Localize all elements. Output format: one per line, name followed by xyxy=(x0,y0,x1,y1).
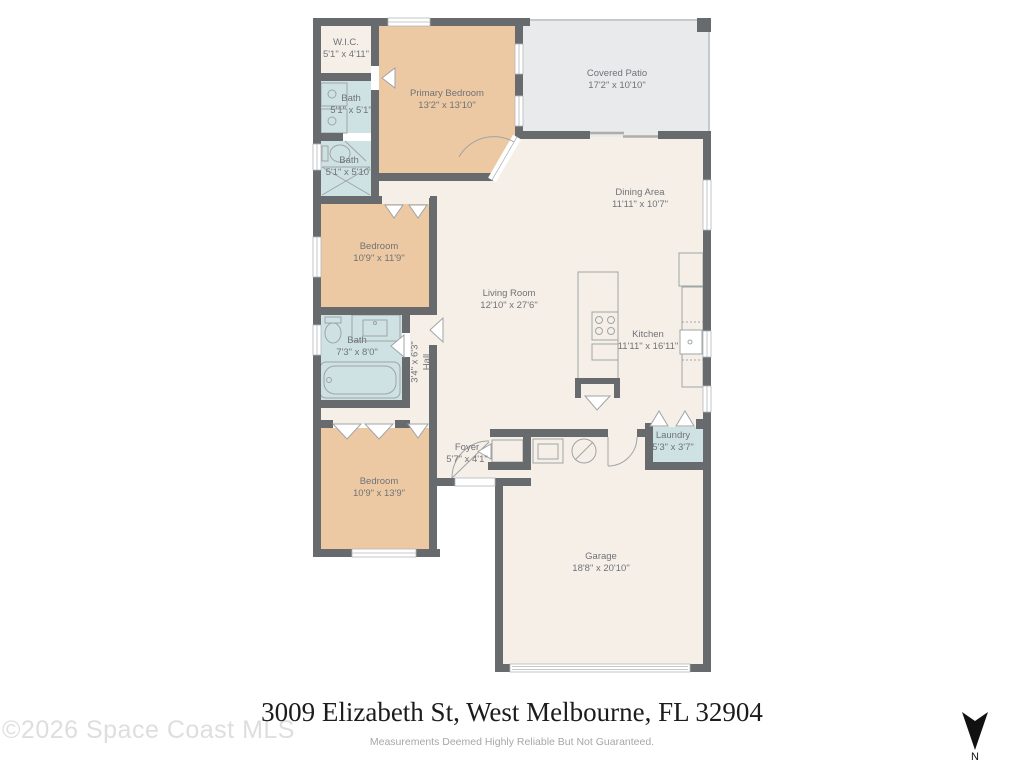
label-bedroom-2: Bedroom 10'9" x 11'9" xyxy=(353,241,404,264)
label-dining-area: Dining Area 11'11" x 10'7" xyxy=(612,187,668,210)
label-primary-bedroom: Primary Bedroom 13'2" x 13'10" xyxy=(410,88,484,111)
room-mini-hall xyxy=(379,177,437,204)
label-bath-3: Bath 7'3" x 8'0" xyxy=(336,335,378,358)
label-bath-1: Bath 5'1" x 5'1" xyxy=(330,93,372,116)
foyer-closet xyxy=(492,440,523,462)
floor-plan-page: W.I.C. 5'1" x 4'11" Bath 5'1" x 5'1" Bat… xyxy=(0,0,1024,768)
disclaimer-text: Measurements Deemed Highly Reliable But … xyxy=(0,736,1024,748)
label-bedroom-3: Bedroom 10'9" x 13'9" xyxy=(353,476,405,499)
label-laundry: Laundry 5'3" x 3'7" xyxy=(652,430,694,453)
floor-plan-drawing xyxy=(0,0,1024,768)
north-label: N xyxy=(971,751,979,763)
label-living-room: Living Room 12'10" x 27'6" xyxy=(480,288,537,311)
garage-door xyxy=(510,664,690,672)
address-title: 3009 Elizabeth St, West Melbourne, FL 32… xyxy=(0,697,1024,728)
front-door-opening xyxy=(455,478,495,486)
label-kitchen: Kitchen 11'11" x 16'11" xyxy=(618,329,679,352)
label-garage: Garage 18'8" x 20'10" xyxy=(572,551,629,574)
label-hall: 3'4" x 6'3" Hall xyxy=(410,341,433,383)
label-foyer: Foyer 5'7" x 4'1" xyxy=(446,442,488,465)
label-covered-patio: Covered Patio 17'2" x 10'10" xyxy=(587,68,647,91)
label-wic: W.I.C. 5'1" x 4'11" xyxy=(323,37,369,60)
label-bath-2: Bath 5'1" x 5'10" xyxy=(326,155,373,178)
kitchen-sink-icon xyxy=(680,330,702,354)
